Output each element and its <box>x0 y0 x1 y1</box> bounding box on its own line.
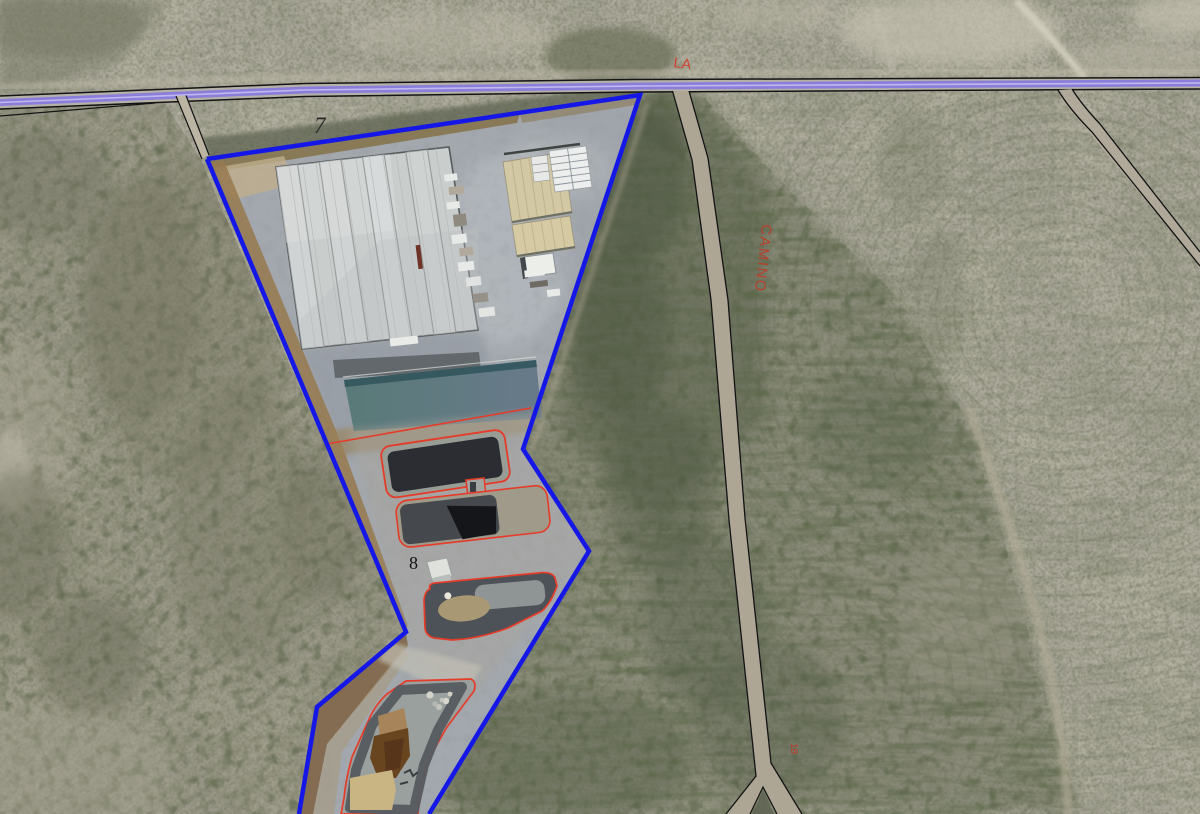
svg-text:LA: LA <box>672 55 692 73</box>
svg-text:8: 8 <box>409 553 418 573</box>
svg-text:7: 7 <box>314 113 327 138</box>
svg-text:18: 18 <box>788 743 799 755</box>
